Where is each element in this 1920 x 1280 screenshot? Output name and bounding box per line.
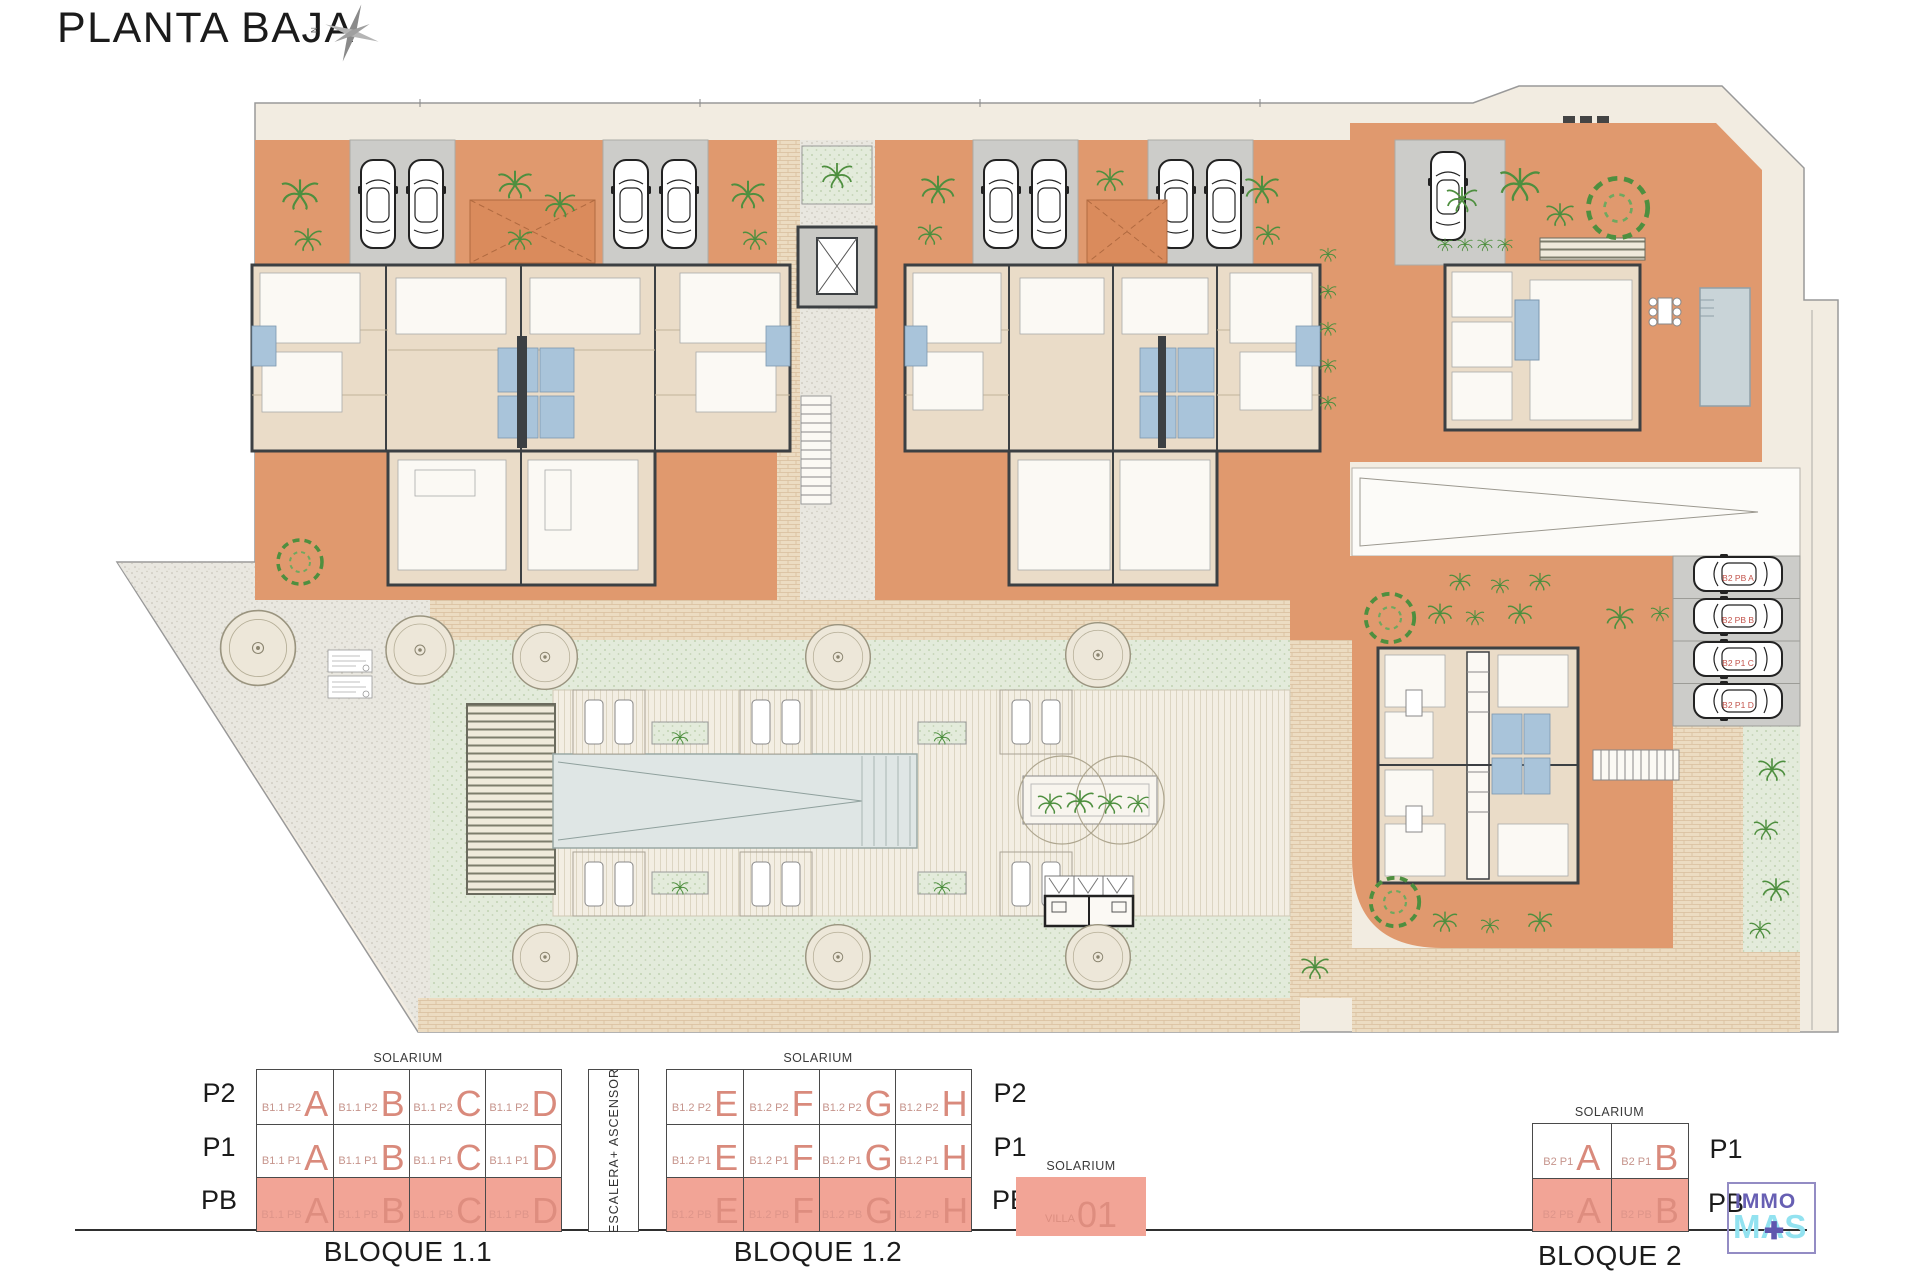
driveway [1352,468,1800,556]
villa-pergola [1540,238,1645,260]
pergola [467,704,555,894]
floor-label-p1: P1 [1696,1134,1756,1165]
unit-cell: B1.1 P2D [485,1070,561,1124]
stairs-elevator-box: ESCALERA+ ASCENSOR [588,1069,639,1232]
bathrooms [1492,714,1550,794]
unit-cell: B1.2 P2F [743,1070,819,1124]
unit-cell: B1.1 P2C [409,1070,485,1124]
wall-blocks [1563,116,1609,123]
bloque-1-1-grid: B1.1 P2A B1.1 P2B B1.1 P2C B1.1 P2D B1.1… [256,1069,562,1232]
bloque-2-grid: B2 P1A B2 P1B B2 PBA B2 PBB [1532,1123,1689,1232]
bloque-1-2-caption: BLOQUE 1.2 [666,1236,970,1268]
parking-right: B2 PB A B2 PB B B2 P1 C B2 P1 D [1673,554,1800,726]
unit-cell: B2 P1B [1611,1124,1689,1178]
solarium-label: SOLARIUM [666,1051,970,1065]
solarium-label: SOLARIUM [1532,1105,1687,1119]
unit-cell-highlighted: B1.2 PBG [819,1177,895,1231]
unit-cell: B1.2 P1E [667,1124,743,1178]
unit-cell: B1.2 P2G [819,1070,895,1124]
bloque-1-1-caption: BLOQUE 1.1 [256,1236,560,1268]
unit-cell: B1.2 P1G [819,1124,895,1178]
unit-cell-highlighted: B1.2 PBF [743,1177,819,1231]
parking-label: B2 P1 D [1722,700,1754,710]
compass-icon: N [300,0,390,66]
unit-cell-highlighted: B1.1 PBC [409,1177,485,1231]
solarium-label: SOLARIUM [1016,1159,1146,1173]
stairs [1593,750,1679,780]
unit-cell: B1.1 P2B [333,1070,409,1124]
parking-label: B2 PB A [1722,573,1754,583]
path-right-strip [1673,726,1743,952]
solarium-label: SOLARIUM [256,1051,560,1065]
unit-cell: B2 P1A [1533,1124,1611,1178]
immomas-logo: IMMO MAS ✚ [1727,1182,1816,1254]
parking-label: B2 PB B [1722,615,1754,625]
villa-01-box: VILLA01 [1016,1177,1146,1236]
unit-cell: B1.1 P2A [257,1070,333,1124]
elevator-core [798,140,876,600]
unit-cell-highlighted: B1.1 PBD [485,1177,561,1231]
shower-block [1045,876,1133,926]
unit-cell: B1.2 P2E [667,1070,743,1124]
outdoor-dining [1649,298,1681,326]
path-bottom-right [1352,948,1800,1032]
parking-label: B2 P1 C [1722,658,1754,668]
logo-plus-icon: ✚ [1764,1217,1784,1246]
floor-label-pb: PB [186,1185,252,1216]
unit-cell: B1.2 P1H [895,1124,971,1178]
unit-cell-highlighted: B1.2 PBE [667,1177,743,1231]
svg-text:N: N [310,27,319,33]
unit-cell: B1.2 P1F [743,1124,819,1178]
floor-label-p2: P2 [186,1078,252,1109]
unit-cell-highlighted: B1.1 PBA [257,1177,333,1231]
path-bottom-left [418,998,1300,1032]
unit-cell-highlighted: B1.1 PBB [333,1177,409,1231]
path-bloque2-left [1290,640,1352,998]
unit-cell: B1.1 P1C [409,1124,485,1178]
unit-cell-highlighted: B1.2 PBH [895,1177,971,1231]
unit-cell: B1.1 P1A [257,1124,333,1178]
bathroom [1515,300,1539,360]
villa-pool [1700,288,1750,406]
unit-cell: B1.1 P1D [485,1124,561,1178]
floor-plan-page: { "header": { "title": "PLANTA BAJA", "c… [0,0,1920,1280]
floor-label-p2: P2 [980,1078,1040,1109]
bloque-1-2-grid: B1.2 P2E B1.2 P2F B1.2 P2G B1.2 P2H B1.2… [666,1069,972,1232]
floor-label-p1: P1 [186,1132,252,1163]
bloque-2-caption: BLOQUE 2 [1500,1240,1720,1272]
unit-cell-highlighted: B2 PBA [1533,1178,1611,1232]
unit-cell: B1.1 P1B [333,1124,409,1178]
unit-cell: B1.2 P2H [895,1070,971,1124]
unit-cell-highlighted: B2 PBB [1611,1178,1689,1232]
